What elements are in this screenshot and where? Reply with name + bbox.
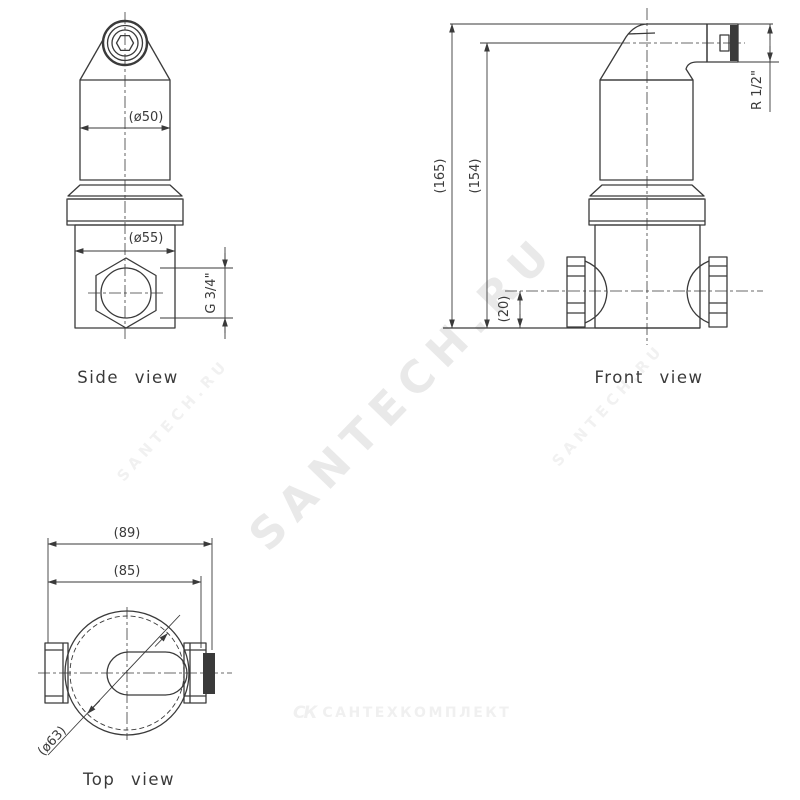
front-view-label: Front view — [595, 368, 704, 387]
top-outlet-projection — [107, 652, 187, 695]
front-dim-port-offset: (20) — [497, 296, 512, 323]
front-lower-body — [595, 225, 700, 328]
top-dim-body-width: (85) — [114, 564, 141, 579]
top-view-drawing: (89) (85) (ø63) Top view — [35, 526, 232, 789]
technical-drawing-page: SANTECH.RU SANTECH.RU SANTECH.RU СК САНТ… — [0, 0, 800, 800]
top-view-label: Top view — [82, 770, 175, 789]
side-view-label: Side view — [77, 368, 178, 387]
front-dim-outlet-thread: R 1/2" — [750, 70, 765, 110]
front-dim-total-height: (165) — [433, 159, 448, 194]
right-union-nut — [709, 257, 727, 327]
top-dim-overall-width: (89) — [114, 526, 141, 541]
top-thread-shading — [203, 653, 215, 694]
side-dim-cap-diameter: (ø50) — [129, 110, 164, 125]
side-dim-port-thread: G 3/4" — [204, 272, 219, 313]
left-union-nut — [567, 257, 585, 327]
side-dim-body-diameter: (ø55) — [129, 231, 164, 246]
outlet-thread-shading — [730, 25, 738, 61]
drawing-svg: (ø50) (ø55) G 3/4" Side view — [0, 0, 800, 800]
front-dim-outlet-height: (154) — [468, 159, 483, 194]
side-view-drawing: (ø50) (ø55) G 3/4" Side view — [67, 12, 233, 387]
top-dim-flange-diameter: (ø63) — [35, 724, 70, 760]
front-upper-body — [600, 80, 693, 180]
front-view-drawing: (165) (154) (20) R 1/2" Front view — [433, 8, 779, 387]
